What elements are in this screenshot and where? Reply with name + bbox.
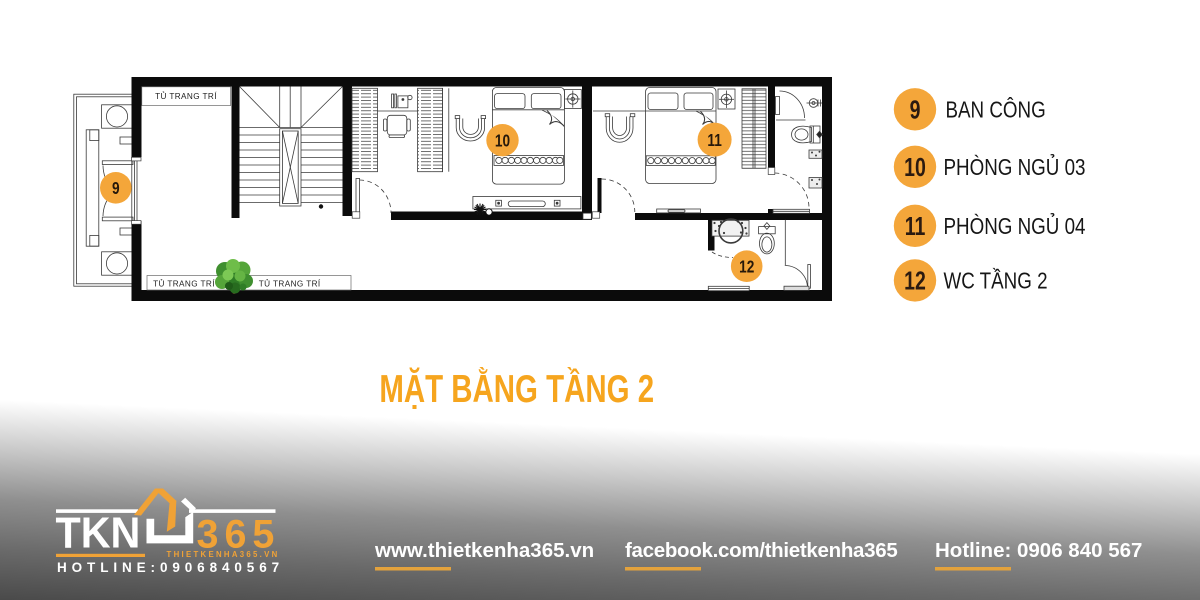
svg-text:Hotline: 0906 840 567: Hotline: 0906 840 567 [935, 539, 1142, 562]
svg-text:TỦ TRANG TRÍ: TỦ TRANG TRÍ [153, 277, 215, 288]
svg-text:HOTLINE:0906840567: HOTLINE:0906840567 [57, 560, 284, 575]
svg-text:12: 12 [904, 266, 926, 295]
svg-text:facebook.com/thietkenha365: facebook.com/thietkenha365 [625, 539, 897, 562]
svg-text:TKN: TKN [56, 509, 141, 557]
svg-text:12: 12 [739, 258, 754, 277]
svg-text:TỦ TRANG TRÍ: TỦ TRANG TRÍ [155, 90, 217, 101]
svg-text:9: 9 [910, 95, 921, 124]
svg-text:WC TẦNG 2: WC TẦNG 2 [944, 267, 1048, 295]
svg-text:www.thietkenha365.vn: www.thietkenha365.vn [374, 539, 594, 562]
svg-text:PHÒNG NGỦ 04: PHÒNG NGỦ 04 [944, 212, 1086, 240]
svg-text:10: 10 [495, 132, 510, 151]
svg-text:10: 10 [904, 152, 926, 181]
svg-text:PHÒNG NGỦ 03: PHÒNG NGỦ 03 [944, 153, 1086, 181]
svg-text:11: 11 [905, 211, 926, 240]
svg-text:THIETKENHA365.VN: THIETKENHA365.VN [167, 550, 280, 559]
svg-text:MẶT BẰNG TẦNG 2: MẶT BẰNG TẦNG 2 [379, 366, 654, 411]
svg-text:11: 11 [707, 131, 722, 150]
svg-text:TỦ TRANG TRÍ: TỦ TRANG TRÍ [259, 277, 321, 288]
svg-text:BAN CÔNG: BAN CÔNG [946, 96, 1046, 124]
svg-text:9: 9 [112, 180, 120, 199]
